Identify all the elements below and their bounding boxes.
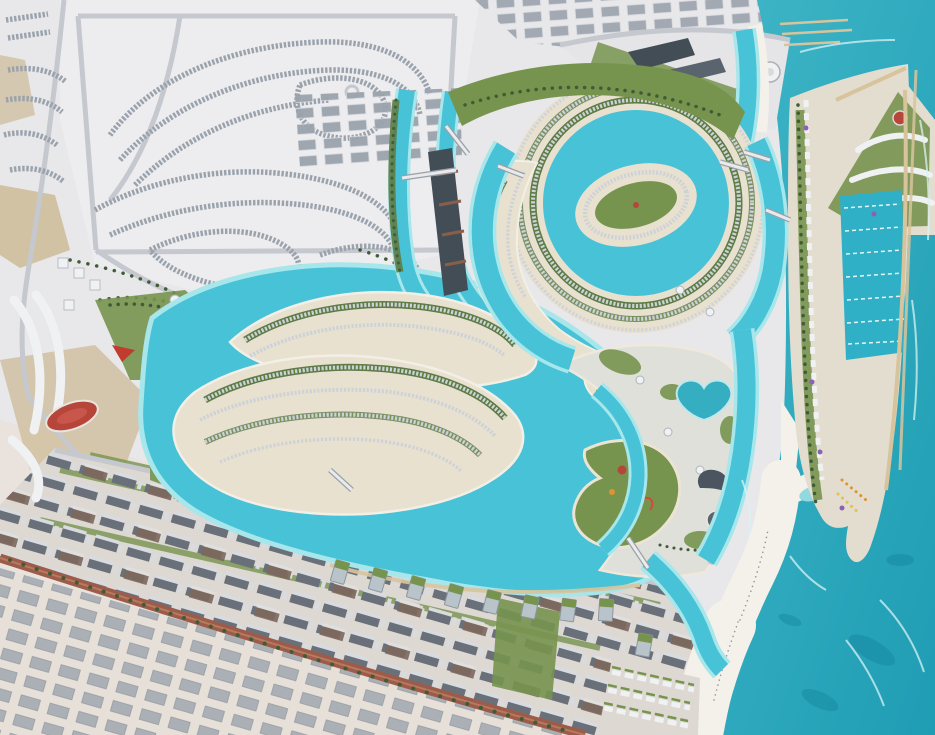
aerial-masterplan-image <box>0 0 935 735</box>
slide-orange <box>609 489 615 495</box>
masterplan-svg <box>0 0 935 735</box>
eye-island-center <box>633 202 639 208</box>
slide-red <box>618 466 627 475</box>
